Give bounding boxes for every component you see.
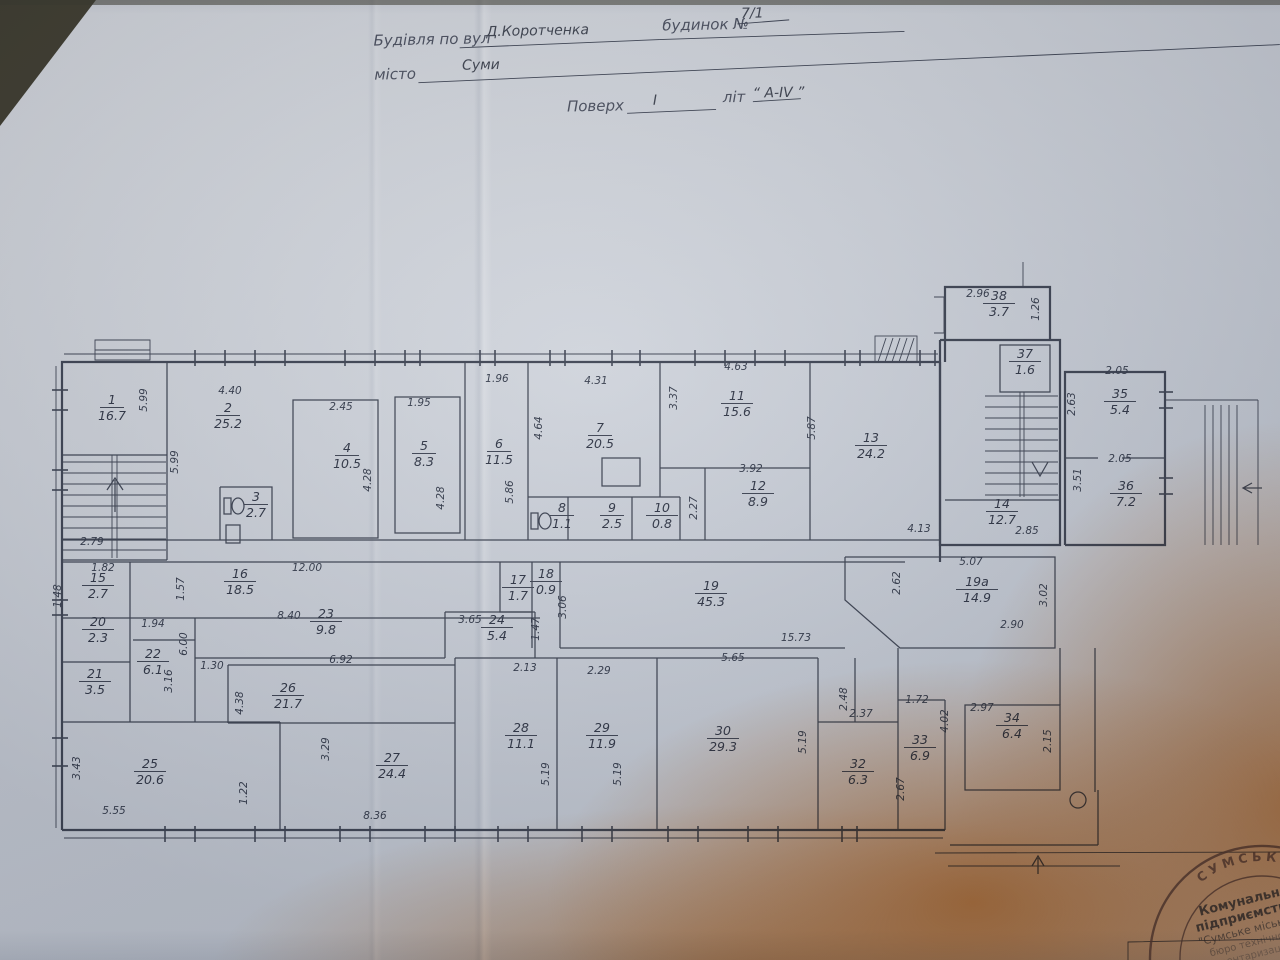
dimension-label: 2.96 bbox=[966, 288, 990, 300]
room-number: 38 bbox=[991, 288, 1007, 303]
dimension-label: 1.96 bbox=[485, 373, 509, 385]
room-label-37: 371.6 bbox=[1009, 346, 1041, 377]
room-number: 29 bbox=[594, 720, 610, 735]
dimension-label: 2.15 bbox=[1042, 729, 1054, 753]
dimension-label: 3.02 bbox=[1038, 583, 1050, 607]
room-label-18: 180.9 bbox=[530, 566, 562, 597]
room-label-36: 367.2 bbox=[1110, 478, 1142, 509]
city-label: місто bbox=[374, 65, 416, 84]
dimension-label: 1.47 bbox=[530, 617, 542, 641]
room-area: 3.5 bbox=[85, 682, 105, 697]
dimension-label: 1.26 bbox=[1030, 297, 1042, 321]
dimension-label: 2.13 bbox=[513, 662, 536, 674]
room-area: 1.7 bbox=[508, 588, 528, 603]
room-number: 22 bbox=[145, 646, 161, 661]
room-label-29: 2911.9 bbox=[586, 720, 618, 751]
official-stamp: СУМСЬКА МІСЬКА РАДА Комунальне підприємс… bbox=[1126, 822, 1280, 960]
room-number: 2 bbox=[224, 400, 232, 415]
room-area: 29.3 bbox=[709, 739, 737, 754]
room-label-12: 128.9 bbox=[742, 478, 774, 509]
dimension-label: 3.51 bbox=[1072, 468, 1084, 491]
room-area: 1.1 bbox=[552, 516, 572, 531]
floor-label: Поверх bbox=[567, 96, 624, 115]
room-label-32: 326.3 bbox=[842, 756, 874, 787]
room-area: 24.4 bbox=[378, 766, 406, 781]
photo-background-artifacts bbox=[0, 0, 1280, 126]
dimension-label: 4.40 bbox=[218, 385, 242, 397]
room-number: 19а bbox=[965, 574, 989, 589]
room-area: 11.1 bbox=[507, 736, 535, 751]
room-area: 0.8 bbox=[652, 516, 672, 531]
photo-top-edge bbox=[0, 0, 1280, 5]
dimension-label: 4.38 bbox=[234, 691, 246, 715]
dimension-label: 2.29 bbox=[587, 665, 611, 677]
room-number: 32 bbox=[850, 756, 866, 771]
dimension-label: 2.67 bbox=[895, 777, 907, 801]
stair-down-arrow bbox=[1032, 462, 1048, 476]
table-corner bbox=[0, 0, 96, 126]
dimension-label: 4.63 bbox=[724, 361, 747, 373]
room-area: 6.9 bbox=[910, 748, 930, 763]
room-label-9: 92.5 bbox=[600, 500, 624, 531]
dimension-label: 5.19 bbox=[797, 730, 809, 754]
dimension-label: 2.97 bbox=[970, 702, 994, 714]
room-area: 18.5 bbox=[226, 582, 254, 597]
dimension-label: 1.95 bbox=[407, 397, 431, 409]
room-area: 8.9 bbox=[748, 494, 768, 509]
room-number: 10 bbox=[654, 500, 670, 515]
room-number: 9 bbox=[608, 500, 616, 515]
room-area: 11.9 bbox=[588, 736, 616, 751]
room-label-20: 202.3 bbox=[82, 614, 114, 645]
room-number: 14 bbox=[994, 496, 1010, 511]
room-area: 24.2 bbox=[857, 446, 885, 461]
room-number: 25 bbox=[142, 756, 158, 771]
room-number: 20 bbox=[90, 614, 106, 629]
dimension-label: 4.13 bbox=[907, 523, 930, 535]
house-number-label: будинок № bbox=[662, 15, 749, 35]
room-label-5: 58.3 bbox=[412, 438, 436, 469]
room-area: 25.2 bbox=[214, 416, 242, 431]
ramp-arrow bbox=[1243, 483, 1262, 493]
dimension-label: 1.22 bbox=[238, 781, 250, 805]
room-number: 33 bbox=[912, 732, 928, 747]
dimension-label: 2.90 bbox=[1000, 619, 1024, 631]
room-label-3: 32.7 bbox=[244, 489, 268, 520]
room-label-25: 2520.6 bbox=[134, 756, 166, 787]
room-area: 6.1 bbox=[143, 662, 163, 677]
dimension-label: 4.28 bbox=[435, 486, 447, 510]
dimension-label: 4.02 bbox=[939, 709, 951, 733]
room-number: 4 bbox=[343, 440, 351, 455]
room-label-30: 3029.3 bbox=[707, 723, 739, 754]
room-label-6: 611.5 bbox=[485, 436, 513, 467]
room-number: 17 bbox=[510, 572, 526, 587]
room-number: 3 bbox=[252, 489, 260, 504]
photographed-floor-plan-document: Будівля по вул Д.Коротченка будинок № 7/… bbox=[0, 0, 1280, 960]
dimension-label: 2.05 bbox=[1108, 453, 1132, 465]
room-number: 19 bbox=[703, 578, 719, 593]
room-label-26: 2621.7 bbox=[272, 680, 304, 711]
dimension-label: 5.86 bbox=[504, 480, 516, 504]
dimension-label: 2.05 bbox=[1105, 365, 1129, 377]
room-label-34: 346.4 bbox=[996, 710, 1028, 741]
room-area: 45.3 bbox=[697, 594, 725, 609]
room-number: 6 bbox=[495, 436, 503, 451]
room-label-24: 245.4 bbox=[481, 612, 513, 643]
dimension-label: 6.00 bbox=[178, 632, 190, 656]
room-label-14: 1412.7 bbox=[986, 496, 1018, 527]
dimension-label: 1.72 bbox=[905, 694, 929, 706]
dimension-label: 2.62 bbox=[891, 571, 903, 595]
dimension-label: 5.99 bbox=[169, 450, 181, 474]
dimension-label: 1.82 bbox=[91, 562, 115, 574]
room-number: 28 bbox=[513, 720, 529, 735]
dimension-label: 5.07 bbox=[959, 556, 983, 568]
room-label-8: 81.1 bbox=[550, 500, 574, 531]
house-number-value: 7/1 bbox=[741, 5, 764, 21]
dimension-label: 8.36 bbox=[363, 810, 387, 822]
room-label-21: 213.5 bbox=[79, 666, 111, 697]
dimension-label: 3.92 bbox=[739, 463, 763, 475]
room-number: 16 bbox=[232, 566, 248, 581]
dimension-label: 5.19 bbox=[540, 762, 552, 786]
dimension-label: 5.55 bbox=[102, 805, 126, 817]
dimension-label: 5.65 bbox=[721, 652, 745, 664]
dimension-label: 15.73 bbox=[781, 632, 811, 644]
dimension-label: 1.94 bbox=[141, 618, 164, 630]
room-area: 8.3 bbox=[414, 454, 434, 469]
room-number: 23 bbox=[318, 606, 334, 621]
room-area: 5.4 bbox=[1110, 402, 1130, 417]
room-number: 37 bbox=[1017, 346, 1033, 361]
dimension-label: 8.40 bbox=[277, 610, 301, 622]
room-label-10: 100.8 bbox=[646, 500, 678, 531]
liter-label: літ bbox=[722, 88, 747, 107]
room-area: 9.8 bbox=[316, 622, 336, 637]
room-label-16: 1618.5 bbox=[224, 566, 256, 597]
room-label-19а: 19а14.9 bbox=[956, 574, 998, 605]
room-number: 27 bbox=[384, 750, 400, 765]
room-number: 11 bbox=[729, 388, 745, 403]
room-area: 16.7 bbox=[98, 408, 126, 423]
room-label-11: 1115.6 bbox=[721, 388, 753, 419]
room-area: 2.7 bbox=[88, 586, 108, 601]
room-number: 21 bbox=[87, 666, 103, 681]
room-number: 7 bbox=[596, 420, 604, 435]
room-label-1: 116.7 bbox=[98, 392, 126, 423]
floor-plan-drawing: Будівля по вул Д.Коротченка будинок № 7/… bbox=[0, 0, 1280, 960]
plan-labels: 116.7225.232.7410.558.3611.5720.581.192.… bbox=[52, 288, 1142, 822]
dimension-label: 1.48 bbox=[52, 584, 64, 608]
room-label-28: 2811.1 bbox=[505, 720, 537, 751]
dimension-label: 3.43 bbox=[71, 756, 83, 779]
city-value: Суми bbox=[462, 57, 500, 74]
dimension-label: 3.29 bbox=[320, 737, 332, 761]
room-area: 10.5 bbox=[333, 456, 361, 471]
room-label-27: 2724.4 bbox=[376, 750, 408, 781]
dimension-label: 5.87 bbox=[806, 416, 818, 440]
dimension-label: 2.63 bbox=[1066, 392, 1078, 415]
room-number: 18 bbox=[538, 566, 554, 581]
room-label-4: 410.5 bbox=[333, 440, 361, 471]
room-area: 2.5 bbox=[602, 516, 622, 531]
dimension-label: 3.65 bbox=[458, 614, 482, 626]
room-area: 7.2 bbox=[1116, 494, 1136, 509]
room-number: 26 bbox=[280, 680, 296, 695]
dimension-label: 3.37 bbox=[668, 386, 680, 410]
dimension-label: 5.19 bbox=[612, 762, 624, 786]
room-area: 20.5 bbox=[586, 436, 614, 451]
walls bbox=[56, 262, 1280, 960]
dimension-label: 4.31 bbox=[584, 375, 607, 387]
dimension-label: 5.99 bbox=[138, 388, 150, 412]
form-header: Будівля по вул Д.Коротченка будинок № 7/… bbox=[373, 0, 1280, 120]
dimension-label: 3.16 bbox=[163, 669, 175, 693]
room-label-7: 720.5 bbox=[586, 420, 614, 451]
dimension-label: 6.92 bbox=[329, 654, 353, 666]
room-number: 8 bbox=[558, 500, 566, 515]
dimension-label: 2.45 bbox=[329, 401, 353, 413]
room-area: 5.4 bbox=[487, 628, 507, 643]
room-area: 0.9 bbox=[536, 582, 556, 597]
dimension-label: 1.30 bbox=[200, 660, 224, 672]
room-area: 6.4 bbox=[1002, 726, 1022, 741]
room-number: 12 bbox=[750, 478, 766, 493]
dimension-label: 2.27 bbox=[688, 496, 700, 520]
floor-value: І bbox=[653, 93, 657, 109]
street-label: Будівля по вул bbox=[373, 29, 491, 49]
room-number: 24 bbox=[489, 612, 505, 627]
room-area: 2.7 bbox=[246, 505, 266, 520]
room-label-15: 152.7 bbox=[82, 570, 114, 601]
dimension-label: 2.48 bbox=[838, 687, 850, 711]
room-number: 36 bbox=[1118, 478, 1134, 493]
entrance-arrow bbox=[1032, 856, 1044, 874]
dimension-label: 1.57 bbox=[175, 577, 187, 601]
room-number: 35 bbox=[1112, 386, 1128, 401]
dimension-label: 4.64 bbox=[533, 416, 545, 439]
dimension-label: 3.06 bbox=[557, 595, 569, 619]
dimension-label: 12.00 bbox=[292, 562, 322, 574]
room-area: 6.3 bbox=[848, 772, 868, 787]
dimension-label: 2.37 bbox=[849, 708, 873, 720]
dimension-label: 2.85 bbox=[1015, 525, 1039, 537]
room-area: 14.9 bbox=[963, 590, 991, 605]
room-label-17: 171.7 bbox=[502, 572, 534, 603]
room-label-33: 336.9 bbox=[904, 732, 936, 763]
street-value: Д.Коротченка bbox=[485, 22, 589, 40]
room-label-2: 225.2 bbox=[214, 400, 242, 431]
room-area: 21.7 bbox=[274, 696, 302, 711]
room-number: 1 bbox=[108, 392, 116, 407]
room-area: 20.6 bbox=[136, 772, 164, 787]
room-area: 15.6 bbox=[723, 404, 751, 419]
room-label-35: 355.4 bbox=[1104, 386, 1136, 417]
room-label-13: 1324.2 bbox=[855, 430, 887, 461]
room-area: 11.5 bbox=[485, 452, 513, 467]
dimension-label: 4.28 bbox=[362, 468, 374, 492]
room-number: 5 bbox=[420, 438, 428, 453]
room-area: 12.7 bbox=[988, 512, 1016, 527]
room-number: 30 bbox=[715, 723, 731, 738]
dimension-label: 2.79 bbox=[80, 536, 104, 548]
room-area: 2.3 bbox=[88, 630, 108, 645]
room-area: 1.6 bbox=[1015, 362, 1035, 377]
room-number: 34 bbox=[1004, 710, 1020, 725]
room-label-23: 239.8 bbox=[310, 606, 342, 637]
room-number: 13 bbox=[863, 430, 879, 445]
room-area: 3.7 bbox=[989, 304, 1009, 319]
room-label-19: 1945.3 bbox=[695, 578, 727, 609]
